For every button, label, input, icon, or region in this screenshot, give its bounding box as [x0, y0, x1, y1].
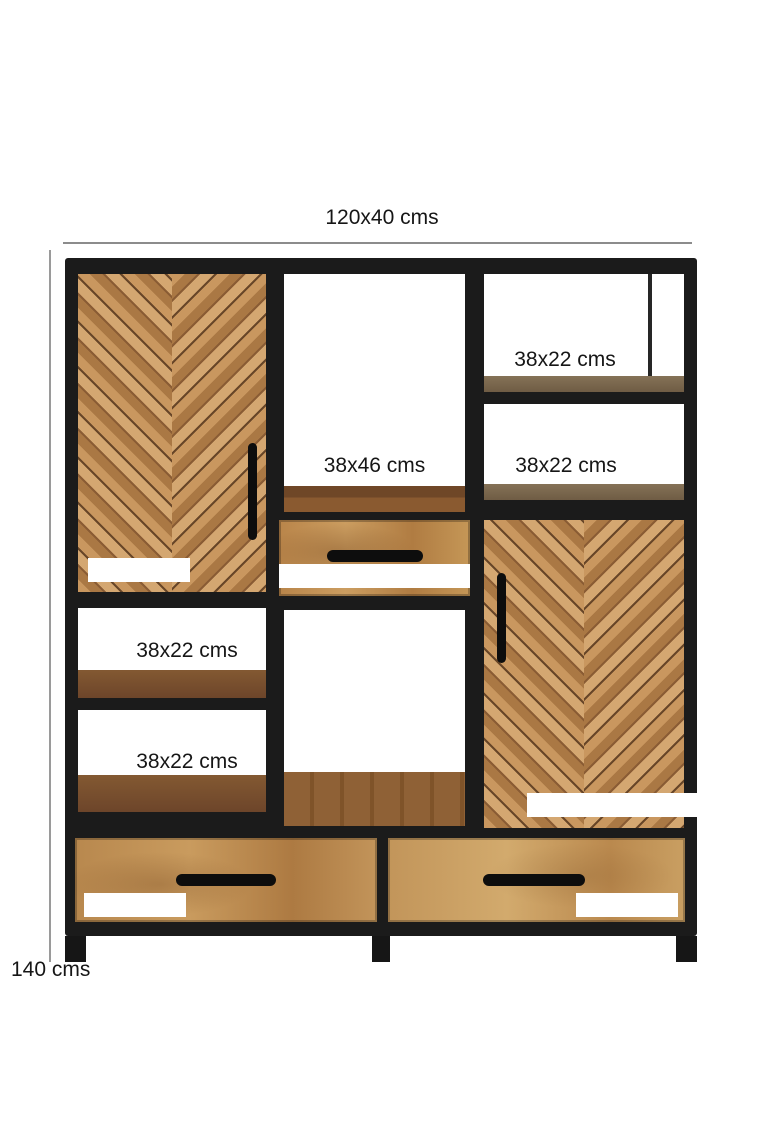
- herringbone-panel-left: [484, 520, 584, 828]
- bottom-right-drawer: 57x14 cms: [388, 838, 685, 922]
- left-door-handle: [248, 443, 257, 540]
- cabinet-leg-right: [676, 936, 697, 962]
- width-dimension-line: [63, 242, 692, 244]
- middle-shelf-slab: [284, 486, 465, 512]
- middle-drawer: 38x14 cms: [279, 520, 470, 596]
- left-door-dimension-label: 62x37 cms: [88, 558, 190, 582]
- overall-width-depth-label: 120x40 cms: [262, 206, 502, 230]
- middle-lower-compartment: [284, 610, 465, 772]
- right-middle-shelf-label: 38x22 cms: [476, 454, 656, 478]
- left-shelf-board-top: [78, 670, 266, 710]
- right-cabinet-door: [484, 520, 684, 828]
- herringbone-panel-left: [78, 274, 172, 592]
- right-door-dimension-label: 62x37 cms: [527, 793, 707, 817]
- bottom-left-drawer-label: 57x14 cms: [84, 893, 186, 917]
- bottom-right-drawer-handle: [483, 874, 585, 886]
- height-dimension-line: [49, 250, 51, 962]
- bottom-left-drawer: 57x14 cms: [75, 838, 377, 922]
- middle-lower-floor: [284, 772, 465, 826]
- middle-drawer-label: 38x14 cms: [279, 564, 470, 588]
- bottom-left-drawer-handle: [176, 874, 276, 886]
- cabinet-frame: 62x37 cms 38x22 cms 38x22 cms 38x46 cms …: [65, 258, 697, 936]
- bottom-right-drawer-label: 57x14 cms: [576, 893, 678, 917]
- herringbone-panel-right: [584, 520, 684, 828]
- middle-drawer-handle: [327, 550, 423, 562]
- left-lower-shelf-label: 38x22 cms: [92, 750, 282, 774]
- herringbone-panel-right: [172, 274, 266, 592]
- furniture-dimension-diagram: 120x40 cms 140 cms 62x37 cms 38x22 cms 3…: [0, 0, 764, 1146]
- cabinet-leg-left: [65, 936, 86, 962]
- right-door-handle: [497, 573, 506, 663]
- cabinet-leg-middle: [372, 936, 390, 962]
- right-shelf-board-middle: [484, 484, 684, 512]
- left-middle-shelf-label: 38x22 cms: [92, 639, 282, 663]
- middle-open-shelf-label: 38x46 cms: [284, 454, 465, 478]
- left-cabinet-door: [78, 274, 266, 592]
- right-top-shelf-label: 38x22 cms: [475, 348, 655, 372]
- right-shelf-board-top: [484, 376, 684, 404]
- left-shelf-board-bottom: [78, 775, 266, 812]
